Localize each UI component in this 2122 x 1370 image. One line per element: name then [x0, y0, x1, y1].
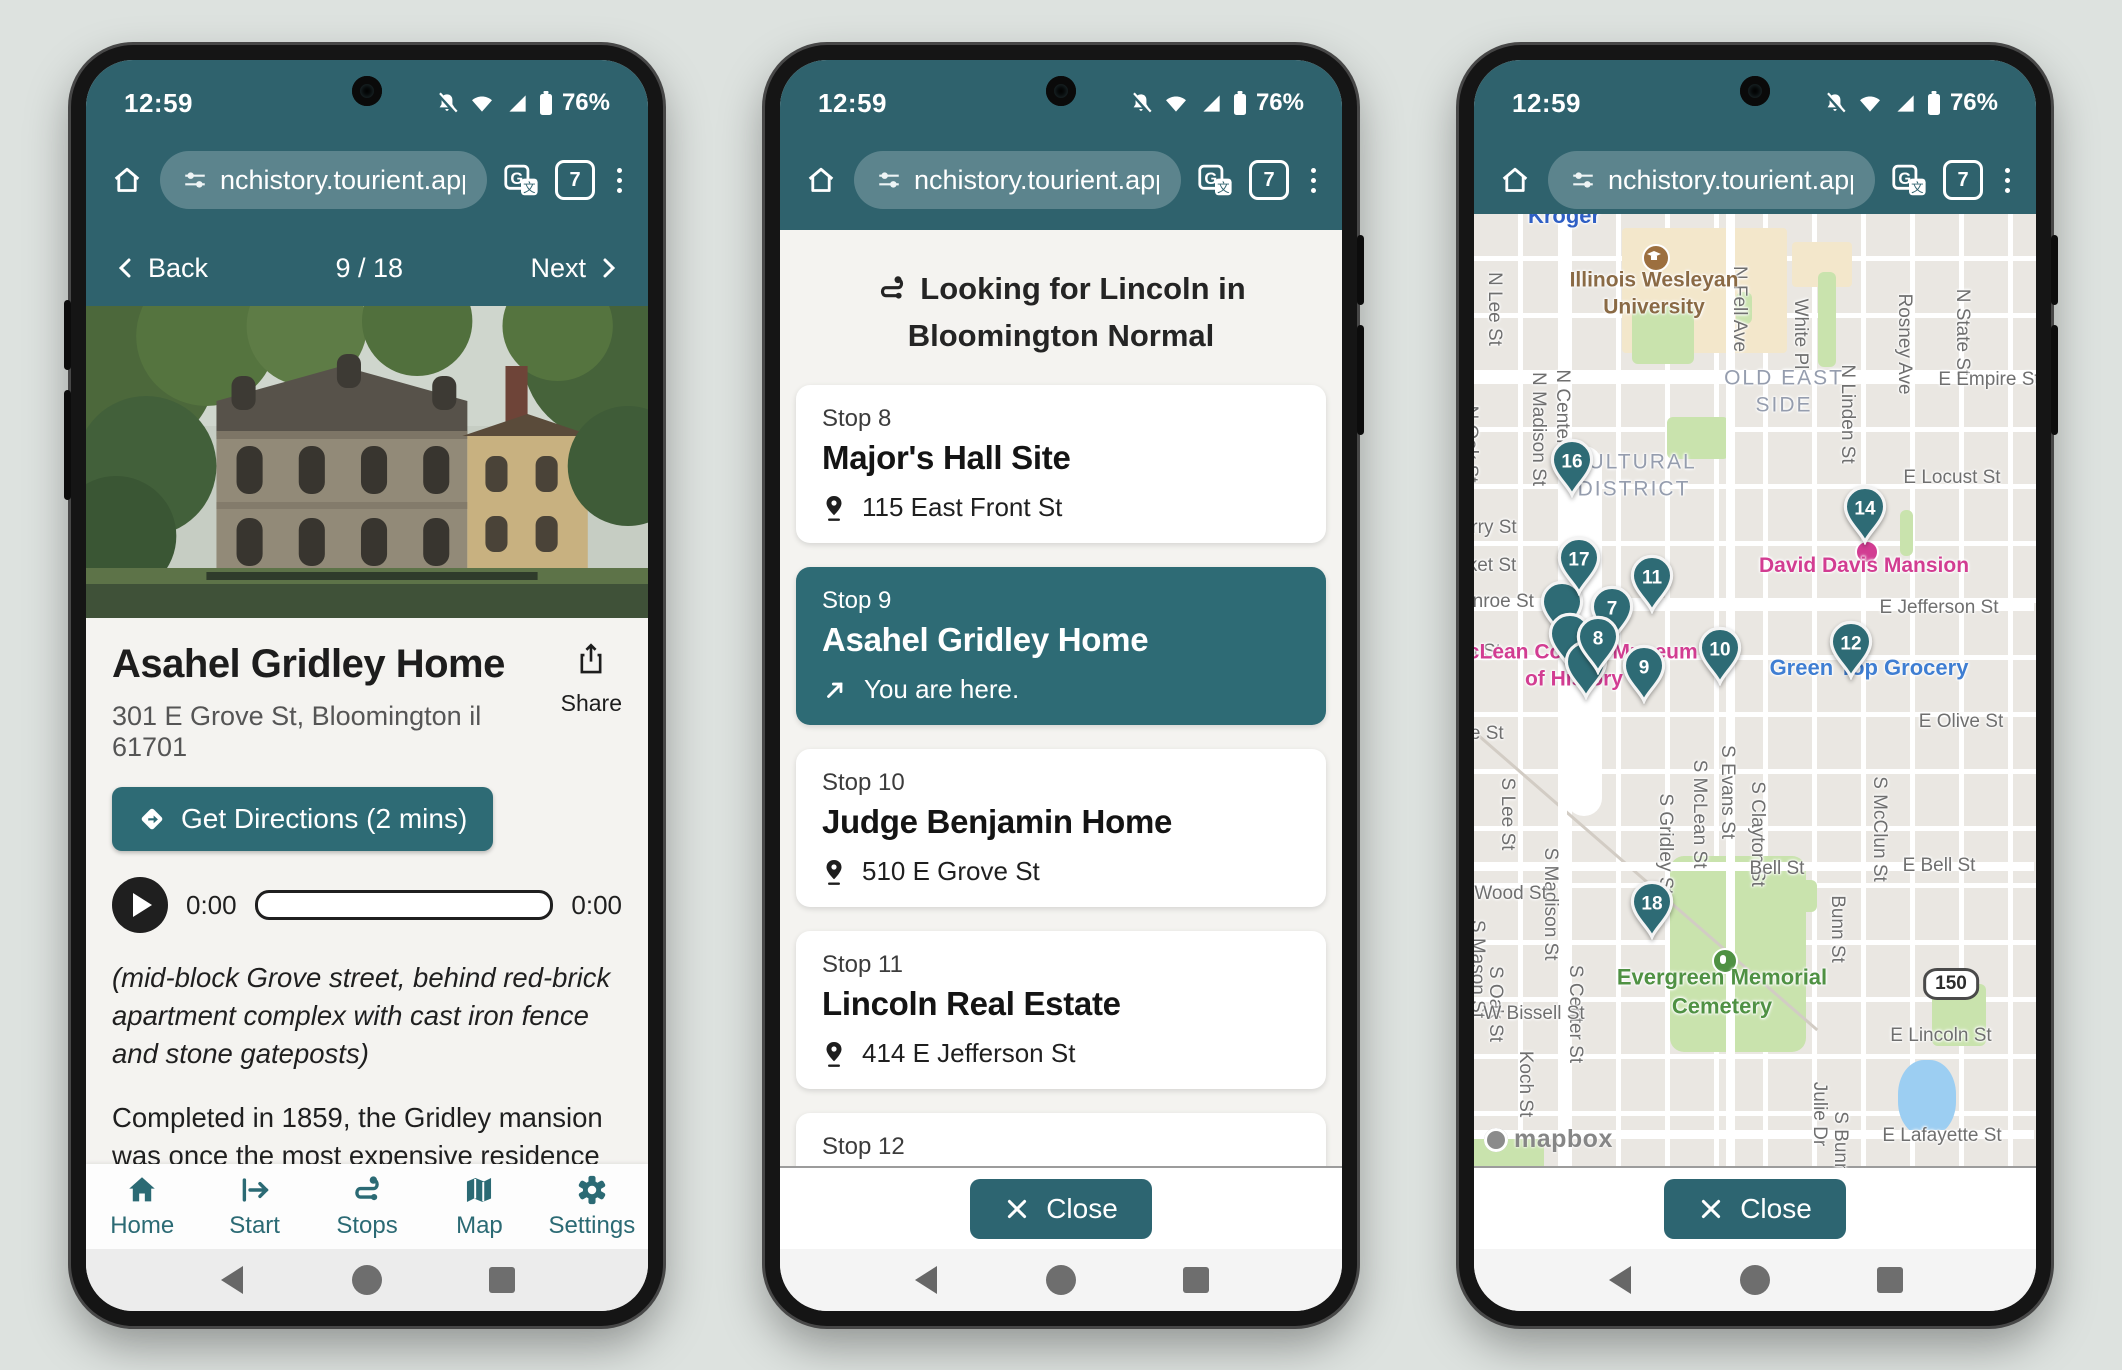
close-bar: Close [780, 1166, 1342, 1249]
map-label: E Empire St [1938, 369, 2036, 391]
directions-icon [138, 805, 166, 833]
directions-label: Get Directions (2 mins) [181, 803, 467, 835]
status-bar: 12:59 76% [1474, 60, 2036, 140]
stop-card-8[interactable]: Stop 8 Major's Hall Site 115 East Front … [796, 385, 1326, 543]
translate-icon[interactable]: G文 [1891, 162, 1927, 198]
map-cemetery-grounds [1670, 856, 1806, 1052]
wifi-icon [1857, 90, 1883, 116]
close-label: Close [1740, 1193, 1812, 1225]
tour-map[interactable]: N Lee StN Oak StN Madison StN Center StN… [1474, 214, 2036, 1168]
play-button[interactable] [112, 877, 168, 933]
audio-current-time: 0:00 [186, 890, 237, 921]
url-text: nchistory.tourient.app [220, 165, 465, 196]
wifi-icon [469, 90, 495, 116]
volume-button [64, 300, 71, 370]
map-label: ket St [1474, 555, 1516, 577]
settings-tab-label: Settings [548, 1212, 635, 1240]
next-button[interactable]: Next [530, 253, 620, 284]
camera-cutout [1046, 76, 1076, 106]
volume-button [1357, 235, 1364, 305]
close-bar: Close [1474, 1166, 2036, 1249]
map-label: E Lincoln St [1890, 1025, 1991, 1047]
android-back-button[interactable] [915, 1266, 937, 1294]
mute-icon [1822, 90, 1848, 116]
stop-number: Stop 11 [822, 951, 1300, 979]
url-bar[interactable]: nchistory.tourient.app [854, 151, 1181, 209]
signal-icon [504, 90, 530, 116]
svg-text:10: 10 [1709, 640, 1730, 661]
close-icon [1004, 1196, 1030, 1222]
phone-3: 12:59 76% nchistory.tourient.app G文 7 [1459, 45, 2051, 1326]
map-park [1900, 510, 1913, 556]
map-label: Rosney Ave [1893, 293, 1915, 394]
svg-text:18: 18 [1641, 894, 1662, 915]
map-label: 150 [1923, 968, 1979, 1000]
stop-number: Stop 9 [822, 587, 1300, 615]
volume-button [2051, 235, 2058, 305]
map-label: N Lee St [1483, 272, 1505, 346]
camera-cutout [1740, 76, 1770, 106]
map-label: Bell St [1750, 858, 1805, 880]
close-icon [1698, 1196, 1724, 1222]
stop-address: 414 E Jefferson St [862, 1038, 1075, 1069]
tab-home[interactable]: Home [86, 1164, 198, 1249]
stops-tab-label: Stops [336, 1212, 397, 1240]
you-are-here-icon [822, 677, 848, 703]
battery-percent: 76% [1950, 89, 1998, 117]
android-back-button[interactable] [1609, 1266, 1631, 1294]
map-label: White Pl [1789, 299, 1811, 370]
share-label: Share [561, 690, 622, 717]
play-icon [133, 893, 152, 917]
site-settings-icon [182, 167, 208, 193]
url-bar[interactable]: nchistory.tourient.app [160, 151, 487, 209]
android-recents-button[interactable] [1183, 1267, 1209, 1293]
stop-number: Stop 12 [822, 1133, 1300, 1161]
map-label: ve St [1474, 723, 1504, 745]
back-label: Back [148, 253, 208, 284]
svg-text:16: 16 [1561, 452, 1582, 473]
tab-start[interactable]: Start [198, 1164, 310, 1249]
android-recents-button[interactable] [489, 1267, 515, 1293]
map-pin[interactable]: 11 [1628, 554, 1676, 614]
svg-text:文: 文 [1217, 180, 1230, 195]
translate-icon[interactable]: G文 [1197, 162, 1233, 198]
tab-stops[interactable]: Stops [311, 1164, 423, 1249]
home-icon[interactable] [1498, 163, 1532, 197]
url-text: nchistory.tourient.app [1608, 165, 1853, 196]
share-button[interactable]: Share [561, 642, 622, 717]
menu-icon[interactable] [611, 164, 628, 197]
mapbox-attribution[interactable]: mapbox [1484, 1125, 1613, 1154]
map-label: E Bell St [1903, 855, 1976, 877]
map-label: onroe St [1474, 591, 1534, 613]
svg-text:17: 17 [1568, 550, 1589, 571]
close-button[interactable]: Close [1664, 1179, 1846, 1239]
power-button [2051, 325, 2058, 435]
phone-1-screen: 12:59 76% nchistory.tourient.app G文 7 [86, 60, 648, 1311]
map-label: N Oak St [1474, 405, 1481, 482]
map-label: S McClun St [1868, 776, 1890, 882]
close-label: Close [1046, 1193, 1118, 1225]
map-pin[interactable]: 9 [1620, 644, 1668, 704]
map-label: N State St [1951, 289, 1973, 376]
stop-card-10[interactable]: Stop 10 Judge Benjamin Home 510 E Grove … [796, 749, 1326, 907]
back-button[interactable]: Back [114, 253, 208, 284]
power-button [1357, 325, 1364, 435]
stop-description-hint: (mid-block Grove street, behind red-bric… [112, 959, 622, 1073]
share-icon [575, 642, 607, 676]
stops-list: Stop 8 Major's Hall Site 115 East Front … [780, 385, 1342, 1271]
bottom-nav: Home Start Stops Map Settings [86, 1164, 648, 1249]
site-settings-icon [1570, 167, 1596, 193]
start-tab-label: Start [229, 1212, 280, 1240]
map-label: E Lafayette St [1882, 1125, 2001, 1147]
android-home-button[interactable] [1740, 1265, 1770, 1295]
map-label: S Lee St [1496, 778, 1518, 851]
mapbox-logo-icon [1484, 1128, 1508, 1152]
mute-icon [434, 90, 460, 116]
android-back-button[interactable] [221, 1266, 243, 1294]
map-label: Kroger [1528, 214, 1600, 229]
location-pin-icon [822, 858, 846, 886]
svg-text:14: 14 [1854, 499, 1876, 520]
phone-2-screen: 12:59 76% nchistory.tourient.app G文 7 [780, 60, 1342, 1311]
stop-pager: Back 9 / 18 Next [86, 230, 648, 306]
svg-text:12: 12 [1840, 634, 1861, 655]
map-label: S McLean St [1688, 760, 1710, 869]
camera-cutout [352, 76, 382, 106]
map-label: Illinois Wesleyan University [1544, 267, 1764, 322]
url-bar[interactable]: nchistory.tourient.app [1548, 151, 1875, 209]
pager-position: 9 / 18 [335, 253, 403, 284]
svg-text:文: 文 [523, 180, 536, 195]
tour-title-text: Looking for Lincoln in Bloomington Norma… [908, 271, 1246, 353]
stop-name: Lincoln Real Estate [822, 985, 1300, 1023]
site-settings-icon [876, 167, 902, 193]
tab-counter[interactable]: 7 [1249, 160, 1289, 200]
mute-icon [1128, 90, 1154, 116]
tour-title: Looking for Lincoln in Bloomington Norma… [780, 230, 1342, 385]
stop-name: Asahel Gridley Home [822, 621, 1300, 659]
stop-address: 115 East Front St [862, 492, 1062, 523]
map-label: S Bunn St [1829, 1111, 1851, 1168]
signal-icon [1198, 90, 1224, 116]
location-pin-icon [822, 1040, 846, 1068]
android-home-button[interactable] [352, 1265, 382, 1295]
tab-counter[interactable]: 7 [555, 160, 595, 200]
svg-text:9: 9 [1639, 658, 1650, 679]
map-pin[interactable]: 18 [1628, 880, 1676, 940]
stop-address: 301 E Grove St, Bloomington il 61701 [112, 701, 561, 763]
map-tab-icon [462, 1173, 496, 1207]
stop-address: 510 E Grove St [862, 856, 1040, 887]
map-label: E Olive St [1919, 711, 2003, 733]
stop-detail: Asahel Gridley Home 301 E Grove St, Bloo… [86, 618, 648, 1251]
stop-name: Major's Hall Site [822, 439, 1300, 477]
android-home-button[interactable] [1046, 1265, 1076, 1295]
map-label: rry St [1474, 517, 1517, 539]
home-icon[interactable] [804, 163, 838, 197]
home-icon[interactable] [110, 163, 144, 197]
status-bar: 12:59 76% [780, 60, 1342, 140]
battery-icon [539, 90, 553, 116]
get-directions-button[interactable]: Get Directions (2 mins) [112, 787, 493, 851]
map-tab-label: Map [456, 1212, 503, 1240]
stop-number: Stop 10 [822, 769, 1300, 797]
battery-percent: 76% [1256, 89, 1304, 117]
stop-card-9-active[interactable]: Stop 9 Asahel Gridley Home You are here. [796, 567, 1326, 725]
audio-progress-bar[interactable] [255, 890, 554, 920]
home-tab-label: Home [110, 1212, 174, 1240]
map-pin[interactable]: 10 [1696, 626, 1744, 686]
map-pin[interactable]: 12 [1827, 620, 1875, 680]
map-label: N Madison St [1527, 372, 1549, 486]
battery-icon [1233, 90, 1247, 116]
audio-player: 0:00 0:00 [112, 877, 622, 933]
svg-text:文: 文 [1911, 180, 1924, 195]
you-are-here-label: You are here. [864, 674, 1019, 705]
battery-icon [1927, 90, 1941, 116]
next-label: Next [530, 253, 586, 284]
battery-percent: 76% [562, 89, 610, 117]
map-label: David Davis Mansion [1759, 554, 1969, 578]
tab-counter[interactable]: 7 [1943, 160, 1983, 200]
stop-name: Judge Benjamin Home [822, 803, 1300, 841]
map-main-road [1726, 214, 1735, 1168]
map-pin[interactable]: 8 [1574, 615, 1622, 675]
map-label: Koch St [1514, 1051, 1536, 1118]
map-label: OLD EAST SIDE [1714, 365, 1854, 420]
power-button [64, 390, 71, 500]
status-time: 12:59 [818, 88, 887, 119]
map-label: E Jefferson St [1880, 597, 1999, 619]
audio-total-time: 0:00 [571, 890, 622, 921]
map-label: Evergreen Memorial Cemetery [1607, 963, 1837, 1020]
browser-bar: nchistory.tourient.app G文 7 [780, 140, 1342, 230]
status-time: 12:59 [124, 88, 193, 119]
stop-number: Stop 8 [822, 405, 1300, 433]
menu-icon[interactable] [1305, 164, 1322, 197]
url-text: nchistory.tourient.app [914, 165, 1159, 196]
tab-settings[interactable]: Settings [536, 1164, 648, 1249]
map-pin[interactable]: 14 [1841, 485, 1889, 545]
translate-icon[interactable]: G文 [503, 162, 539, 198]
map-label: E Locust St [1903, 467, 2000, 489]
signal-icon [1892, 90, 1918, 116]
mapbox-label: mapbox [1514, 1125, 1613, 1154]
browser-bar: nchistory.tourient.app G文 7 [86, 140, 648, 230]
stop-card-11[interactable]: Stop 11 Lincoln Real Estate 414 E Jeffer… [796, 931, 1326, 1089]
map-label: Julie Dr [1808, 1082, 1830, 1146]
settings-tab-icon [575, 1173, 609, 1207]
start-tab-icon [238, 1173, 272, 1207]
wifi-icon [1163, 90, 1189, 116]
map-pin[interactable]: 17 [1555, 536, 1603, 596]
android-gesture-bar [86, 1249, 648, 1311]
status-time: 12:59 [1512, 88, 1581, 119]
svg-text:8: 8 [1593, 629, 1604, 650]
phone-1: 12:59 76% nchistory.tourient.app G文 7 [71, 45, 663, 1326]
close-button[interactable]: Close [970, 1179, 1152, 1239]
menu-icon[interactable] [1999, 164, 2016, 197]
android-gesture-bar [1474, 1249, 2036, 1311]
phone-3-screen: 12:59 76% nchistory.tourient.app G文 7 [1474, 60, 2036, 1311]
stops-tab-icon [350, 1173, 384, 1207]
map-label: W Bissell St [1483, 1003, 1584, 1025]
android-gesture-bar [780, 1249, 1342, 1311]
home-tab-icon [125, 1173, 159, 1207]
tab-map[interactable]: Map [423, 1164, 535, 1249]
location-pin-icon [822, 494, 846, 522]
svg-text:11: 11 [1642, 568, 1663, 589]
map-label: Bunn St [1826, 895, 1848, 963]
stop-photo [86, 306, 648, 618]
phone-2: 12:59 76% nchistory.tourient.app G文 7 [765, 45, 1357, 1326]
map-park [1818, 272, 1836, 367]
status-bar: 12:59 76% [86, 60, 648, 140]
map-label: S Evans St [1716, 745, 1738, 839]
android-recents-button[interactable] [1877, 1267, 1903, 1293]
map-label: W Wood St [1474, 883, 1547, 905]
map-pin[interactable]: 16 [1548, 438, 1596, 498]
page-title: Asahel Gridley Home [112, 642, 561, 687]
